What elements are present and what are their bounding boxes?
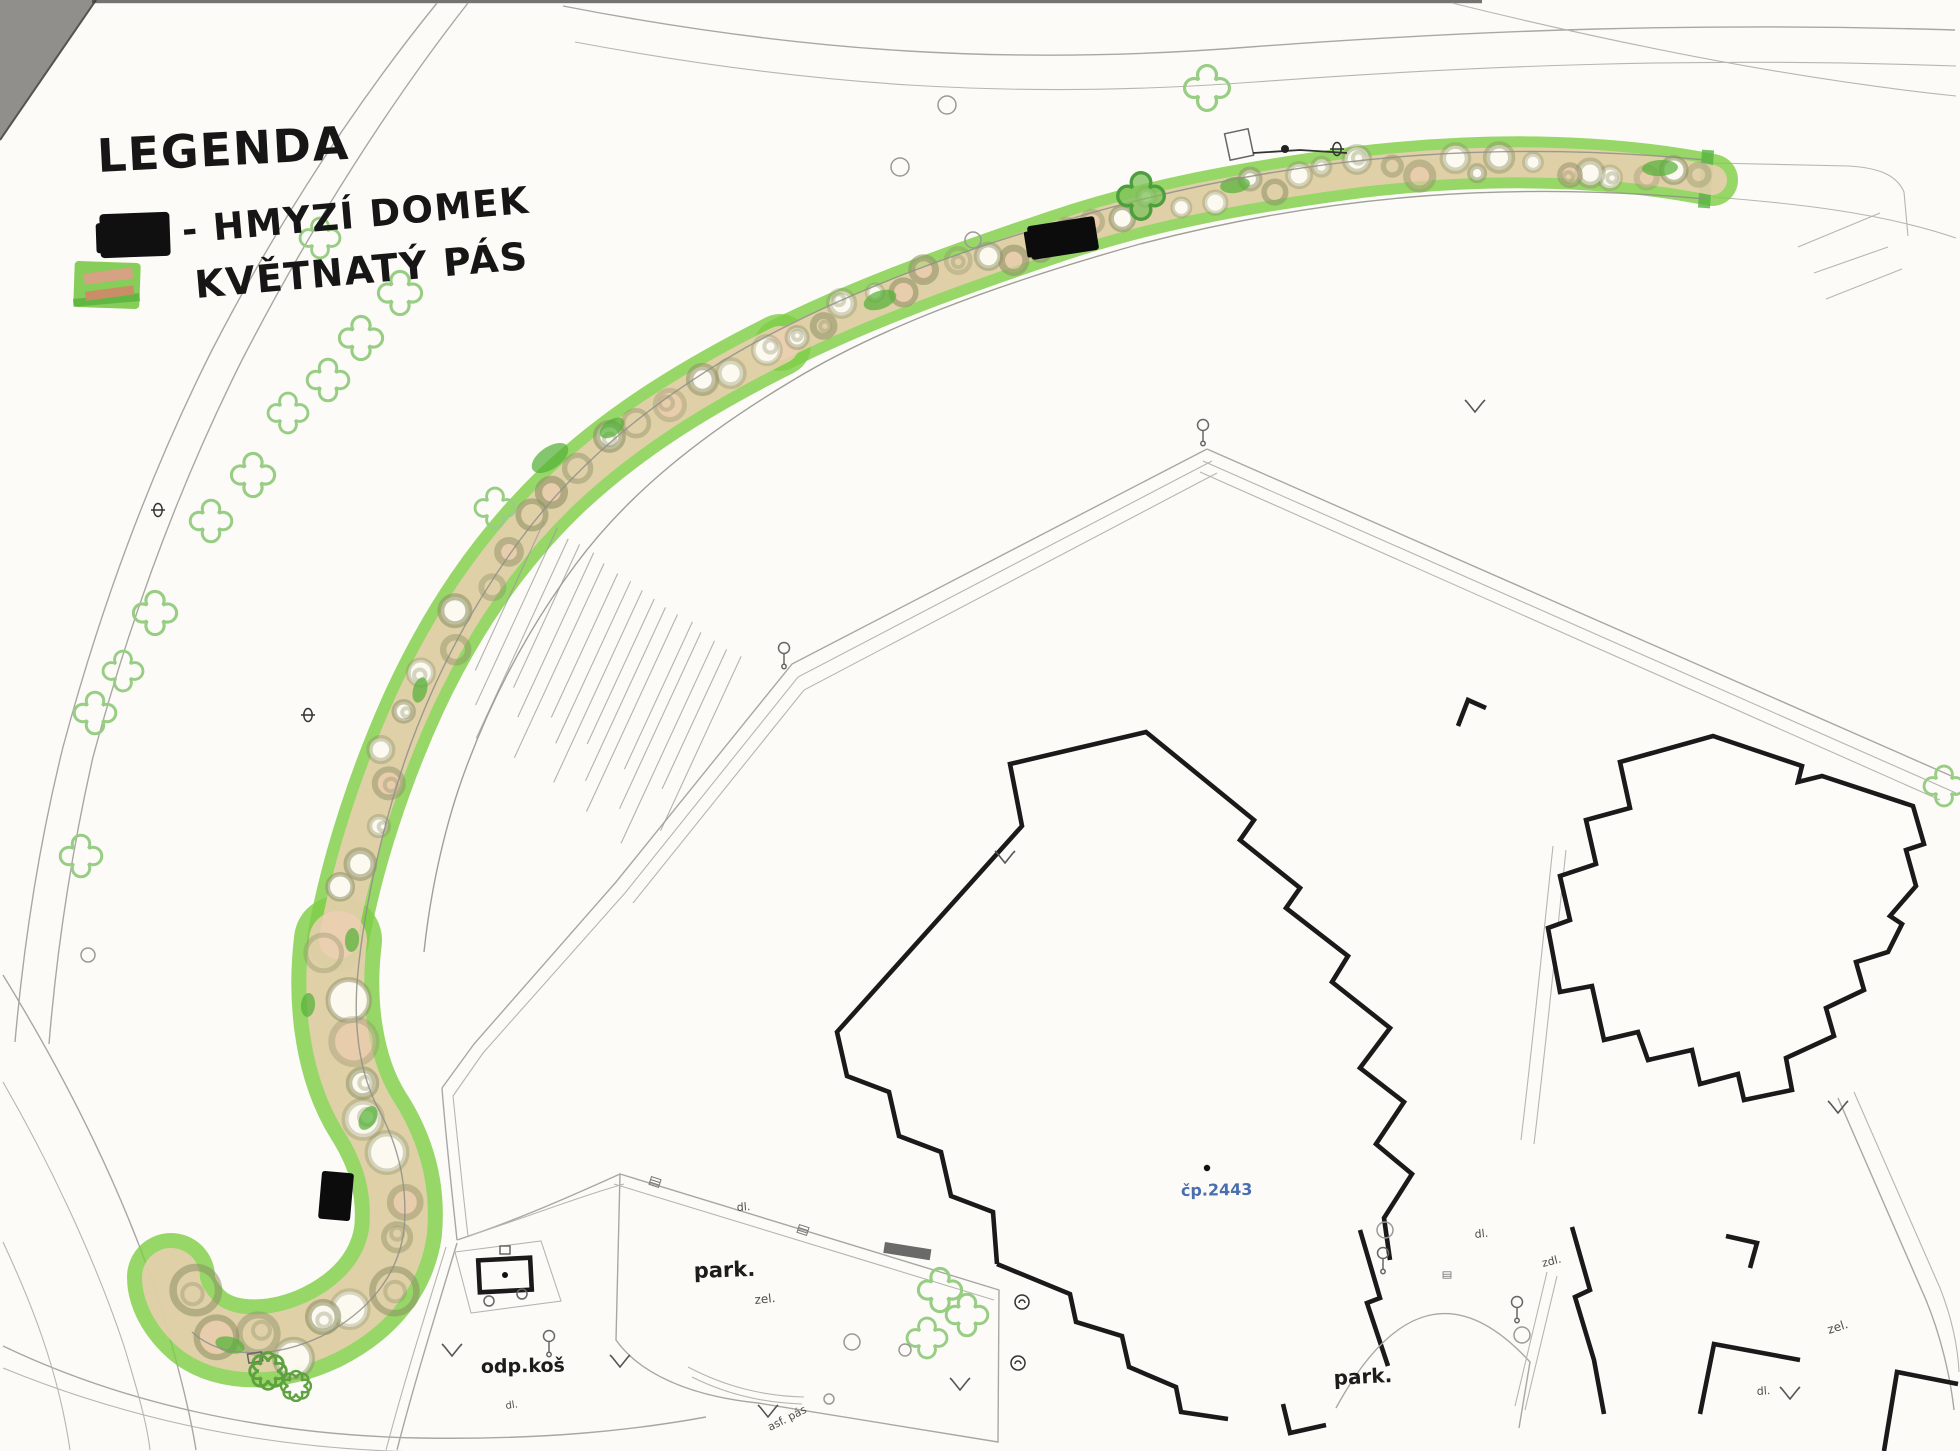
road-line <box>3 1346 706 1438</box>
survey-marker-icon <box>301 709 315 722</box>
flower-strip <box>171 145 1714 1377</box>
building-corner-piece <box>1884 1372 1958 1451</box>
tree-symbol <box>907 1318 947 1358</box>
lamp-post-icon <box>1512 1297 1523 1323</box>
planting-circle <box>1407 163 1433 189</box>
tree-circle <box>938 96 956 114</box>
legend-title: LEGENDA <box>96 116 351 183</box>
planting-circle <box>328 980 369 1021</box>
planting-circle <box>977 244 1001 268</box>
footpath <box>1854 1092 1959 1372</box>
drain-grate-icon <box>1443 1272 1451 1278</box>
path-edge-line <box>359 151 1705 962</box>
slope-hachure-line <box>620 632 701 808</box>
insect-house-mark <box>318 1171 354 1222</box>
planting-circle <box>1002 248 1026 272</box>
tree-symbol <box>190 500 232 542</box>
paving-label: dl. <box>1756 1384 1770 1398</box>
tree-circle <box>891 158 909 176</box>
curb-line <box>688 1367 804 1397</box>
planting-circle <box>347 851 374 878</box>
valve-mark-icon <box>758 1405 778 1417</box>
planting-circle <box>891 280 916 305</box>
slope-hachure-line <box>551 574 617 718</box>
footpath <box>1521 846 1553 1140</box>
courtyard-wall <box>1572 1227 1604 1414</box>
building-number-label: čp.2443 <box>1181 1180 1253 1200</box>
legend-flower-strip-swatch <box>73 261 141 309</box>
road-line <box>3 975 196 1450</box>
parking-label-left: park. <box>693 1257 755 1283</box>
valve-mark-icon <box>610 1355 630 1367</box>
field-boundary <box>453 461 1212 1096</box>
tree-symbol <box>268 393 308 433</box>
valve-mark-icon <box>442 1344 462 1356</box>
slope-hachure-line <box>586 607 666 780</box>
point-mark <box>1204 1165 1210 1171</box>
ramp-label: zdl. <box>1541 1253 1563 1270</box>
planting-circle <box>1525 154 1541 170</box>
planting-circle <box>332 1019 376 1063</box>
road-line <box>1452 3 1956 96</box>
slope-hachure-line <box>624 622 692 769</box>
greenery-label: zel. <box>1826 1317 1850 1337</box>
small-box <box>500 1246 510 1254</box>
slope-tick <box>1798 213 1902 299</box>
field-boundary <box>1200 472 1940 800</box>
planting-circle <box>369 738 392 761</box>
road-line <box>575 42 1956 90</box>
building-right-outline <box>1548 736 1924 1100</box>
utility-box <box>1225 129 1254 160</box>
footpath <box>453 1096 468 1236</box>
valve-mark-icon <box>950 1378 970 1390</box>
tree-circle <box>81 948 95 962</box>
planting-circle <box>441 597 469 625</box>
drain-grate-icon <box>649 1177 661 1188</box>
planting-circle <box>1314 159 1329 174</box>
planting-circle <box>1205 192 1226 213</box>
valve-mark-icon <box>1465 400 1485 412</box>
buildings <box>837 700 1958 1451</box>
manhole-icon <box>1011 1356 1025 1370</box>
tree-circle <box>824 1394 834 1404</box>
survey-marker-icon <box>151 504 165 517</box>
courtyard-wall <box>1360 1230 1388 1366</box>
scan-artifacts <box>0 0 1482 140</box>
parking-lot-boundary <box>614 1184 994 1300</box>
legend: LEGENDA - HMYZÍ DOMEK KVĚTNATÝ PÁS <box>73 116 531 309</box>
tree-symbol <box>1185 66 1230 111</box>
path-edge-line <box>424 191 1706 952</box>
footpath <box>1534 850 1566 1144</box>
parking-lot-boundary <box>616 1174 999 1442</box>
building-corner-piece <box>1458 700 1486 726</box>
slope-hachure-line <box>587 599 654 744</box>
planting-circle <box>1487 145 1512 170</box>
tree-symbol <box>133 591 176 634</box>
post-circle <box>484 1296 494 1306</box>
field-boundary <box>1203 461 1956 793</box>
paving-label: dl. <box>1474 1227 1489 1241</box>
planting-circle <box>1443 146 1468 171</box>
slope-hachure-line <box>661 656 742 830</box>
bench-mark <box>1281 145 1289 153</box>
slope-hachure-line <box>662 649 727 789</box>
field-boundary <box>442 449 1207 1088</box>
waste-bin-label: odp.koš <box>481 1355 565 1378</box>
paving-label: dl. <box>505 1399 519 1412</box>
building-corner-piece <box>1700 1344 1800 1414</box>
greenery-label: zel. <box>754 1291 776 1307</box>
map-labels: čp.2443 park. park. odp.koš zel. zel. dl… <box>481 1180 1850 1434</box>
lamp-post-icon <box>544 1331 555 1357</box>
field-boundary <box>1207 449 1956 778</box>
tree-circle <box>844 1334 860 1350</box>
valve-mark-icon <box>1828 1101 1848 1113</box>
curb-line <box>692 1377 802 1404</box>
tree-circle <box>899 1344 911 1356</box>
manhole-icon <box>1015 1295 1029 1309</box>
paving-label: dl. <box>736 1200 750 1214</box>
lamp-post-icon <box>779 643 790 669</box>
tree-symbol <box>339 316 382 359</box>
road-line <box>3 1242 70 1450</box>
tree-circle <box>1514 1327 1530 1343</box>
lamp-post-icon <box>1198 420 1209 446</box>
tree-symbol <box>307 359 349 401</box>
footpath <box>468 1184 624 1236</box>
site-plan-scan: čp.2443 park. park. odp.koš zel. zel. dl… <box>0 0 1960 1451</box>
building-central-outline <box>837 732 1412 1433</box>
valve-mark-icon <box>1780 1387 1800 1399</box>
building-corner-piece <box>1726 1236 1757 1268</box>
scan-top-edge <box>92 0 1482 3</box>
field-boundary <box>633 473 1217 903</box>
legend-insect-house-swatch <box>95 212 170 259</box>
bin-plateau <box>455 1241 561 1313</box>
planting-circle <box>718 361 743 386</box>
courtyard-ramp <box>1515 1272 1557 1410</box>
slope-hachure-line <box>556 581 631 743</box>
planting-circle <box>328 874 353 899</box>
tree-symbol <box>231 453 274 496</box>
footpath <box>457 1174 620 1240</box>
bin-center-dot <box>502 1272 508 1278</box>
road-line <box>563 6 1955 55</box>
tree-symbol <box>60 835 102 877</box>
footpath <box>1838 1098 1954 1410</box>
planting-circle <box>1470 166 1484 180</box>
planting-circle <box>1173 199 1190 216</box>
parking-label-right: park. <box>1333 1363 1393 1390</box>
slope-hachure-line <box>621 641 715 844</box>
